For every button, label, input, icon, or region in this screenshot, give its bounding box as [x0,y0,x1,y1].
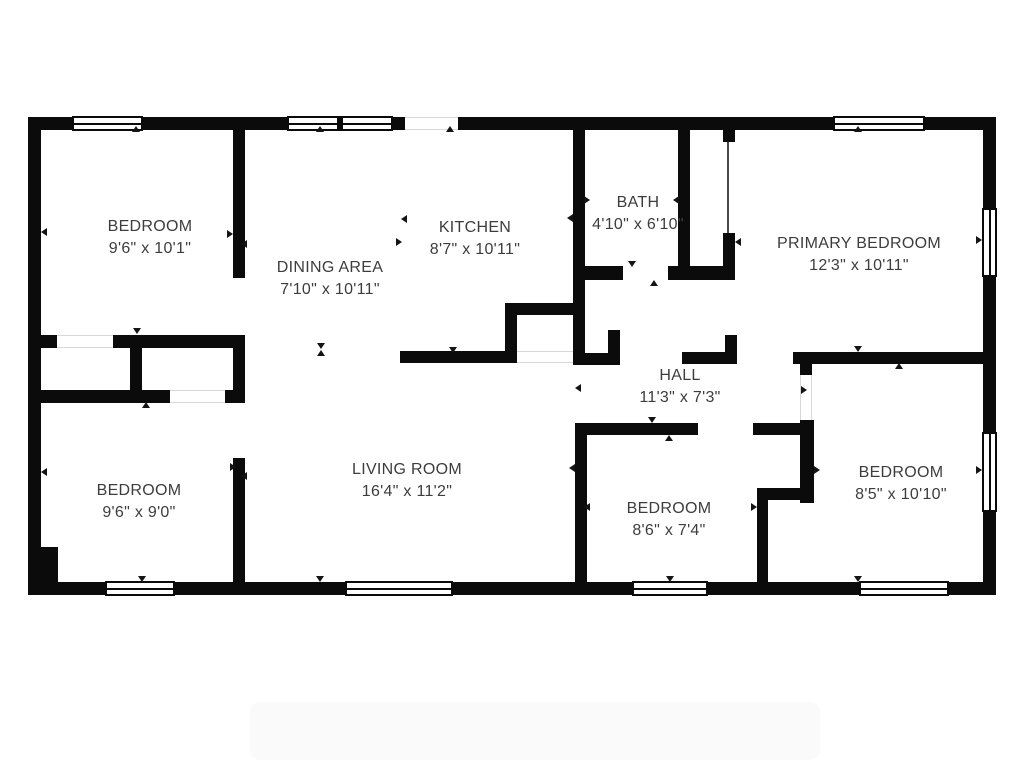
direction-arrow-icon [227,230,233,238]
room-dims: 8'6" x 7'4" [627,520,712,542]
wall-segment [608,330,620,365]
room-dims: 12'3" x 10'11" [777,255,941,277]
window [859,581,949,596]
window [982,432,997,512]
direction-arrow-icon [142,402,150,408]
room-dims: 16'4" x 11'2" [352,481,462,503]
room-label-bedroom-top-left: BEDROOM 9'6" x 10'1" [108,216,193,260]
room-dims: 9'6" x 9'0" [97,502,182,524]
room-name: BEDROOM [97,480,182,502]
wall-segment [400,351,517,363]
room-label-bedroom-bottom-left: BEDROOM 9'6" x 9'0" [97,480,182,524]
direction-arrow-icon [316,576,324,582]
direction-arrow-icon [241,240,247,248]
wall-segment [225,390,245,403]
room-name: PRIMARY BEDROOM [777,233,941,255]
wall-segment [723,233,735,278]
room-label-bedroom-bottom-right: BEDROOM 8'5" x 10'10" [855,462,947,506]
wall-segment [40,390,170,403]
window-mullion [337,116,343,131]
room-name: BATH [592,192,684,214]
direction-arrow-icon [976,236,982,244]
watermark [250,702,820,760]
direction-arrow-icon [584,196,590,204]
room-dims: 4'10" x 6'10" [592,214,684,236]
hall-opening [517,351,573,363]
wall-segment [768,488,814,500]
closet-door-line [727,142,729,233]
direction-arrow-icon [648,417,656,423]
window [287,116,393,131]
direction-arrow-icon [751,503,757,511]
direction-arrow-icon [133,328,141,334]
closet-opening [170,390,225,403]
room-name: BEDROOM [108,216,193,238]
window [345,581,453,596]
closet-opening [57,335,113,348]
room-label-bath: BATH 4'10" x 6'10" [592,192,684,236]
wall-segment [757,488,768,582]
wall-segment [585,266,623,280]
wall-segment [233,130,245,278]
direction-arrow-icon [132,126,140,132]
direction-arrow-icon [854,346,862,352]
direction-arrow-icon [316,126,324,132]
wall-segment [505,303,585,315]
direction-arrow-icon [230,463,236,471]
hall-opening [800,375,812,420]
room-label-dining-area: DINING AREA 7'10" x 10'11" [277,257,383,301]
wall-segment [793,352,985,364]
wall-segment [725,335,737,352]
room-dims: 9'6" x 10'1" [108,238,193,260]
room-name: BEDROOM [855,462,947,484]
wall-segment [40,335,57,348]
wall-segment [575,423,698,435]
direction-arrow-icon [317,343,325,349]
window [105,581,175,596]
window [632,581,708,596]
fireplace-block [28,547,58,583]
room-dims: 7'10" x 10'11" [277,279,383,301]
wall-exterior-left [28,117,41,595]
room-label-kitchen: KITCHEN 8'7" x 10'11" [430,217,520,261]
direction-arrow-icon [449,347,457,353]
room-label-hall: HALL 11'3" x 7'3" [639,365,720,409]
room-dims: 11'3" x 7'3" [639,387,720,409]
room-label-primary-bedroom: PRIMARY BEDROOM 12'3" x 10'11" [777,233,941,277]
direction-arrow-icon [241,472,247,480]
direction-arrow-icon [317,350,325,356]
direction-arrow-icon [138,576,146,582]
room-name: BEDROOM [627,498,712,520]
direction-arrow-icon [814,466,820,474]
direction-arrow-icon [976,466,982,474]
direction-arrow-icon [41,468,47,476]
window [982,208,997,277]
direction-arrow-icon [446,126,454,132]
direction-arrow-icon [584,503,590,511]
direction-arrow-icon [41,228,47,236]
direction-arrow-icon [396,238,402,246]
direction-arrow-icon [895,363,903,369]
direction-arrow-icon [854,126,862,132]
room-dims: 8'5" x 10'10" [855,484,947,506]
wall-segment [573,117,585,365]
direction-arrow-icon [666,576,674,582]
direction-arrow-icon [735,238,741,246]
floor-plan: BEDROOM 9'6" x 10'1" DINING AREA 7'10" x… [0,0,1024,768]
direction-arrow-icon [575,384,581,392]
direction-arrow-icon [567,214,573,222]
wall-segment [682,352,737,364]
wall-segment [753,423,814,435]
direction-arrow-icon [401,215,407,223]
room-label-living-room: LIVING ROOM 16'4" x 11'2" [352,459,462,503]
room-label-bedroom-bottom-middle: BEDROOM 8'6" x 7'4" [627,498,712,542]
direction-arrow-icon [650,280,658,286]
window [833,116,925,131]
wall-segment [800,355,812,375]
room-name: DINING AREA [277,257,383,279]
direction-arrow-icon [801,386,807,394]
wall-segment [723,130,735,142]
direction-arrow-icon [569,464,575,472]
room-name: HALL [639,365,720,387]
wall-segment [113,335,245,348]
direction-arrow-icon [628,261,636,267]
room-name: LIVING ROOM [352,459,462,481]
room-dims: 8'7" x 10'11" [430,239,520,261]
room-name: KITCHEN [430,217,520,239]
direction-arrow-icon [665,435,673,441]
direction-arrow-icon [854,576,862,582]
